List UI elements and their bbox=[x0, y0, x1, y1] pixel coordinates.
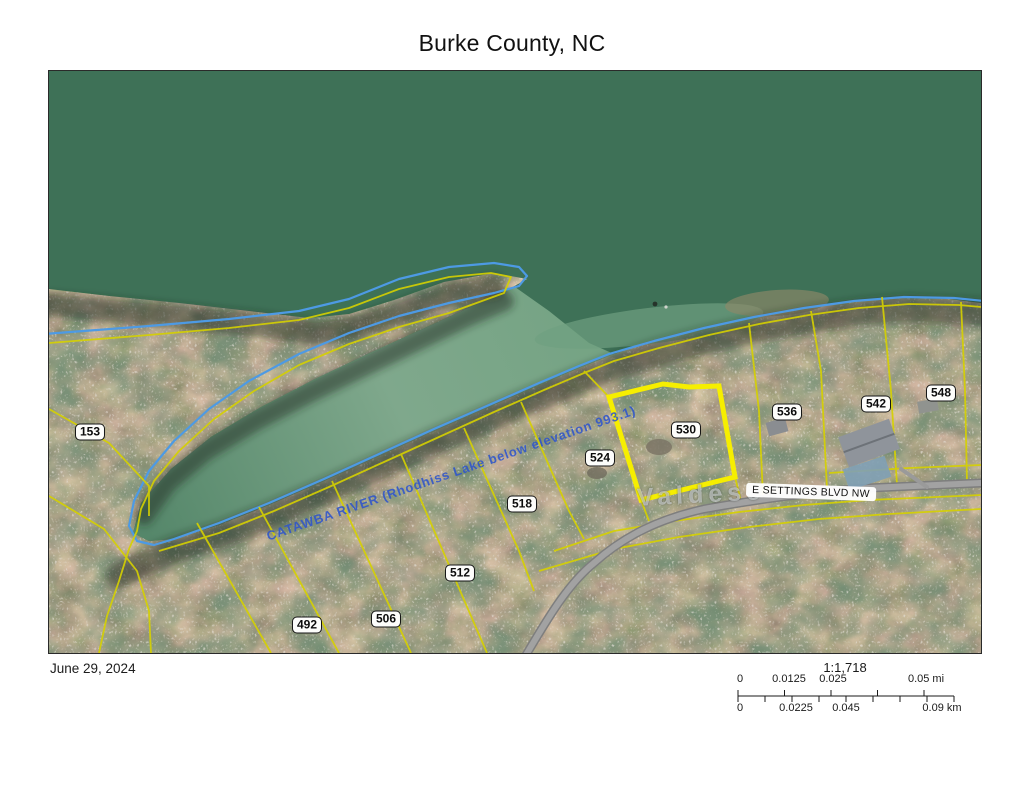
parcel-label: 548 bbox=[926, 385, 956, 402]
scale-km-label: 0 bbox=[737, 702, 743, 714]
boat-dot bbox=[664, 305, 667, 308]
scale-km-label: 0.045 bbox=[832, 702, 860, 714]
scale-km-label: 0.09 km bbox=[922, 702, 961, 714]
map-canvas[interactable]: CATAWBA RIVER (Rhodhiss Lake below eleva… bbox=[48, 70, 982, 654]
parcel-label: 536 bbox=[772, 404, 802, 421]
scale-mi-label: 0 bbox=[737, 673, 743, 685]
parcel-label: 542 bbox=[861, 396, 891, 413]
parcel-label-highlighted: 530 bbox=[671, 422, 701, 439]
scale-km-label: 0.0225 bbox=[779, 702, 813, 714]
boat-dot bbox=[653, 302, 658, 307]
parcel-label: 506 bbox=[371, 611, 401, 628]
parcel-label: 512 bbox=[445, 565, 475, 582]
parcel-label: 492 bbox=[292, 617, 322, 634]
clearing-patch bbox=[587, 467, 607, 479]
scale-mi-label: 0.025 bbox=[819, 673, 847, 685]
parcel-label: 524 bbox=[585, 450, 615, 467]
parcel-label: 518 bbox=[507, 496, 537, 513]
aerial-imagery bbox=[49, 71, 981, 653]
page-title: Burke County, NC bbox=[0, 30, 1024, 57]
parcel-label: 153 bbox=[75, 424, 105, 441]
scale-mi-label: 0.05 mi bbox=[908, 673, 944, 685]
scale-mi-label: 0.0125 bbox=[772, 673, 806, 685]
clearing-patch bbox=[646, 439, 672, 455]
map-date: June 29, 2024 bbox=[50, 661, 136, 676]
